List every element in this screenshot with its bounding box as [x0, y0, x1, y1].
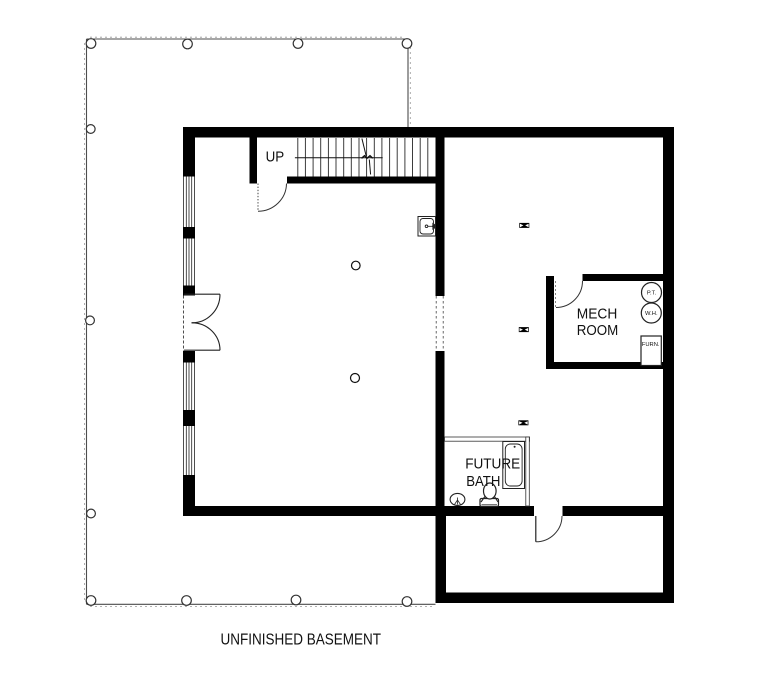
svg-text:MECH: MECH — [577, 305, 618, 322]
svg-text:BATH: BATH — [466, 473, 500, 490]
svg-text:P.T.: P.T. — [647, 291, 657, 297]
svg-text:FURN.: FURN. — [642, 342, 660, 348]
svg-text:UP: UP — [266, 149, 285, 165]
svg-text:ROOM: ROOM — [577, 322, 619, 339]
svg-text:UNFINISHED BASEMENT: UNFINISHED BASEMENT — [221, 631, 382, 648]
svg-text:FUTURE: FUTURE — [465, 455, 520, 472]
svg-text:W.H.: W.H. — [645, 311, 658, 317]
